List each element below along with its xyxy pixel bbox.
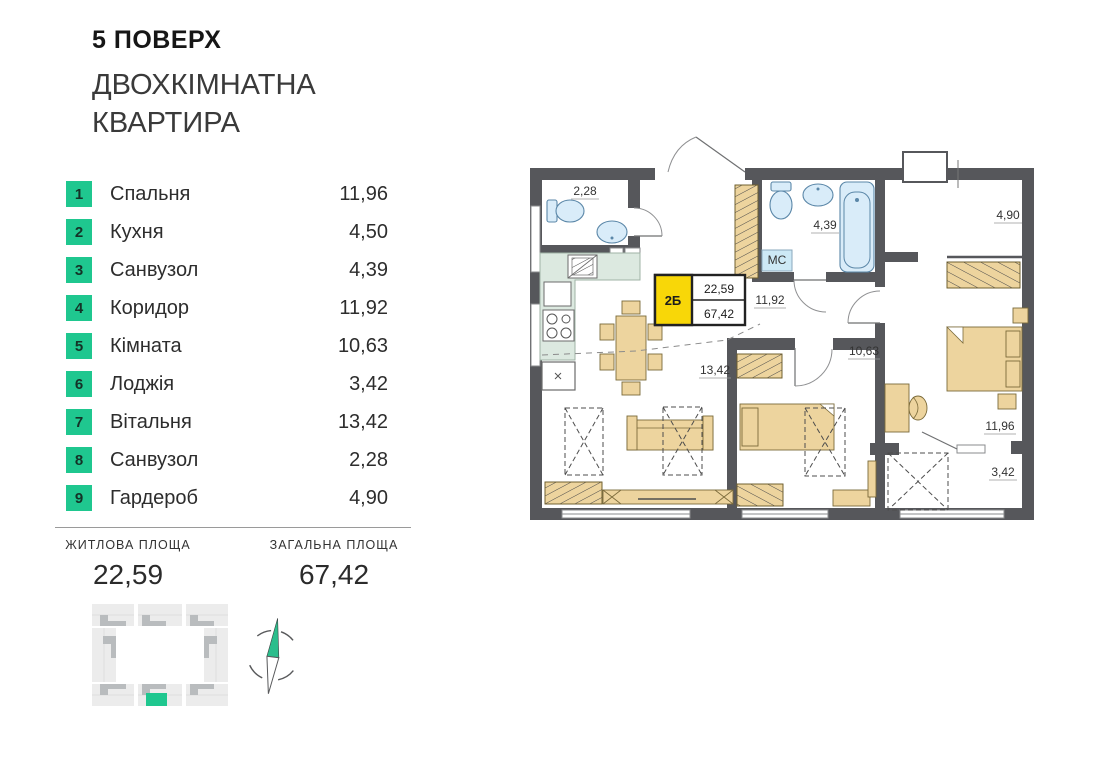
washing-machine-box: МС (762, 250, 792, 271)
apartment-type-line2: КВАРТИРА (92, 104, 316, 142)
room-area: 2,28 (318, 449, 388, 472)
room-name: Кімната (110, 335, 318, 358)
room-row: 9Гардероб4,90 (66, 479, 388, 517)
sink-icon (803, 184, 833, 206)
room-row: 8Санвузол2,28 (66, 441, 388, 479)
building-footprint-map (84, 598, 236, 716)
tv-stand (603, 490, 733, 504)
total-area-label: ЗАГАЛЬНА ПЛОЩА (256, 538, 412, 552)
living-area-value: 22,59 (50, 559, 206, 591)
room-name: Гардероб (110, 487, 318, 510)
room-row: 4Коридор11,92 (66, 289, 388, 327)
compass-north-needle (267, 618, 284, 658)
room-area: 11,96 (318, 183, 388, 206)
desk (833, 490, 870, 506)
loggia-placeholder (888, 453, 948, 510)
sink-icon (597, 221, 627, 243)
unit-badge-total: 67,42 (704, 307, 734, 321)
room-row: 1Спальня11,96 (66, 175, 388, 213)
room-row: 6Лоджія3,42 (66, 365, 388, 403)
room-number-badge: 1 (66, 181, 92, 207)
label-bathroom-small: 2,28 (573, 184, 597, 198)
room-number-badge: 2 (66, 219, 92, 245)
room-area: 4,90 (318, 487, 388, 510)
room-name: Вітальня (110, 411, 318, 434)
compass-icon (243, 612, 303, 700)
dining-table (600, 301, 662, 395)
divider-line (55, 527, 411, 528)
stove-icon (543, 310, 574, 341)
room-name: Коридор (110, 297, 318, 320)
compass-south-needle (262, 656, 278, 694)
toilet-icon (547, 200, 584, 222)
room-name: Лоджія (110, 373, 318, 396)
label-loggia: 3,42 (991, 465, 1015, 479)
sofa (627, 416, 713, 450)
single-bed (740, 404, 834, 450)
room-name: Кухня (110, 221, 318, 244)
floor-plan: МС (528, 132, 1046, 524)
washing-machine-label: МС (768, 253, 787, 267)
apartment-type-line1: ДВОХКІМНАТНА (92, 66, 316, 104)
room-row: 5Кімната10,63 (66, 327, 388, 365)
label-corridor: 11,92 (755, 293, 784, 307)
room-number-badge: 7 (66, 409, 92, 435)
small-bathroom (547, 200, 627, 243)
toilet-icon (770, 182, 792, 219)
total-area-value: 67,42 (256, 559, 412, 591)
room-name: Санвузол (110, 449, 318, 472)
room-row: 3Санвузол4,39 (66, 251, 388, 289)
living-area-summary: ЖИТЛОВА ПЛОЩА 22,59 (50, 538, 206, 591)
room-row: 2Кухня4,50 (66, 213, 388, 251)
apartment-type-title: ДВОХКІМНАТНА КВАРТИРА (92, 66, 316, 142)
room-area: 4,50 (318, 221, 388, 244)
room-number-badge: 8 (66, 447, 92, 473)
room-name: Санвузол (110, 259, 318, 282)
room-number-badge: 4 (66, 295, 92, 321)
label-living-room: 13,42 (700, 363, 730, 377)
room-area: 13,42 (318, 411, 388, 434)
room-number-badge: 9 (66, 485, 92, 511)
room-number-badge: 5 (66, 333, 92, 359)
bedroom-desk (885, 384, 927, 432)
fridge-icon (542, 362, 575, 390)
footprint-section-marks (100, 615, 217, 695)
desk (868, 461, 876, 497)
room-row: 7Вітальня13,42 (66, 403, 388, 441)
room-area: 10,63 (318, 335, 388, 358)
living-area-label: ЖИТЛОВА ПЛОЩА (50, 538, 206, 552)
shaft-box (903, 152, 947, 182)
room-name: Спальня (110, 183, 318, 206)
unit-badge: 2Б 22,59 67,42 (655, 275, 745, 325)
double-bed (947, 308, 1028, 409)
room-area: 4,39 (318, 259, 388, 282)
room-area: 11,92 (318, 297, 388, 320)
bathtub-icon (840, 182, 874, 272)
room-number-badge: 6 (66, 371, 92, 397)
floor-title: 5 ПОВЕРХ (92, 26, 221, 55)
label-bathroom: 4,39 (813, 218, 837, 232)
unit-badge-living: 22,59 (704, 282, 734, 296)
room-number-badge: 3 (66, 257, 92, 283)
footprint-current-unit[interactable] (146, 693, 167, 706)
label-wardrobe-room: 4,90 (996, 208, 1020, 222)
room-area: 3,42 (318, 373, 388, 396)
label-room: 10,63 (849, 344, 879, 358)
total-area-summary: ЗАГАЛЬНА ПЛОЩА 67,42 (256, 538, 412, 591)
unit-badge-number: 2Б (665, 293, 682, 308)
label-bedroom: 11,96 (985, 419, 1014, 433)
room-list: 1Спальня11,96 2Кухня4,50 3Санвузол4,39 4… (66, 175, 388, 517)
